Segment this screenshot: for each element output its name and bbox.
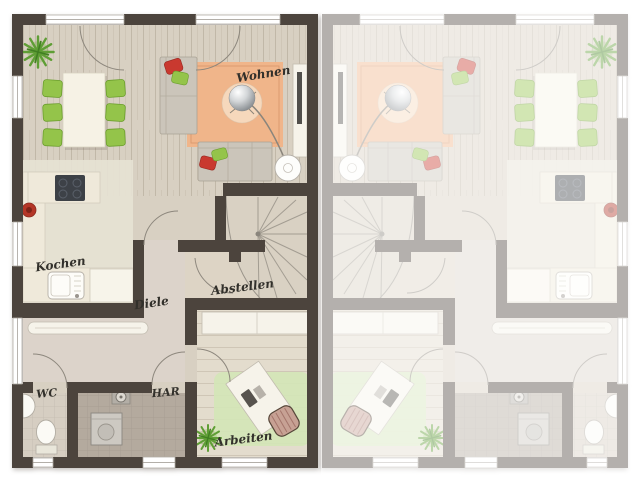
chair (106, 128, 126, 146)
toilet-tank (36, 445, 57, 454)
chair (43, 129, 63, 147)
wall-hall-storage (178, 240, 265, 252)
right-unit-fade-overlay (321, 0, 640, 480)
lamp-base (275, 155, 301, 181)
lamp-sphere (229, 85, 255, 111)
chair (42, 79, 62, 97)
wall-stairs-north (223, 183, 318, 196)
stair-pole (256, 232, 261, 237)
office-wardrobe (202, 312, 314, 334)
cooktop (55, 175, 85, 201)
wall-wc-har (67, 393, 78, 457)
faucet (75, 294, 79, 298)
toilet (37, 420, 56, 444)
chair (105, 103, 125, 121)
dining-table (63, 73, 105, 147)
wall-kitchen-east (133, 240, 144, 306)
label-har: HAR (150, 385, 180, 400)
chair (105, 79, 125, 97)
floor-plan-canvas: Wohnen Kochen Diele Abstellen WC HAR Arb… (0, 0, 640, 480)
unit-left (12, 14, 318, 468)
wall-kitchen-south (12, 303, 144, 318)
wall-hall-south (67, 382, 152, 393)
hallway-furniture (28, 322, 148, 334)
chair (43, 103, 63, 121)
wall-office-west (185, 382, 197, 457)
kitchen-appliance (90, 269, 133, 302)
hall-floor (144, 240, 185, 382)
wall-storage-south (185, 298, 318, 310)
label-wc: WC (36, 386, 58, 401)
